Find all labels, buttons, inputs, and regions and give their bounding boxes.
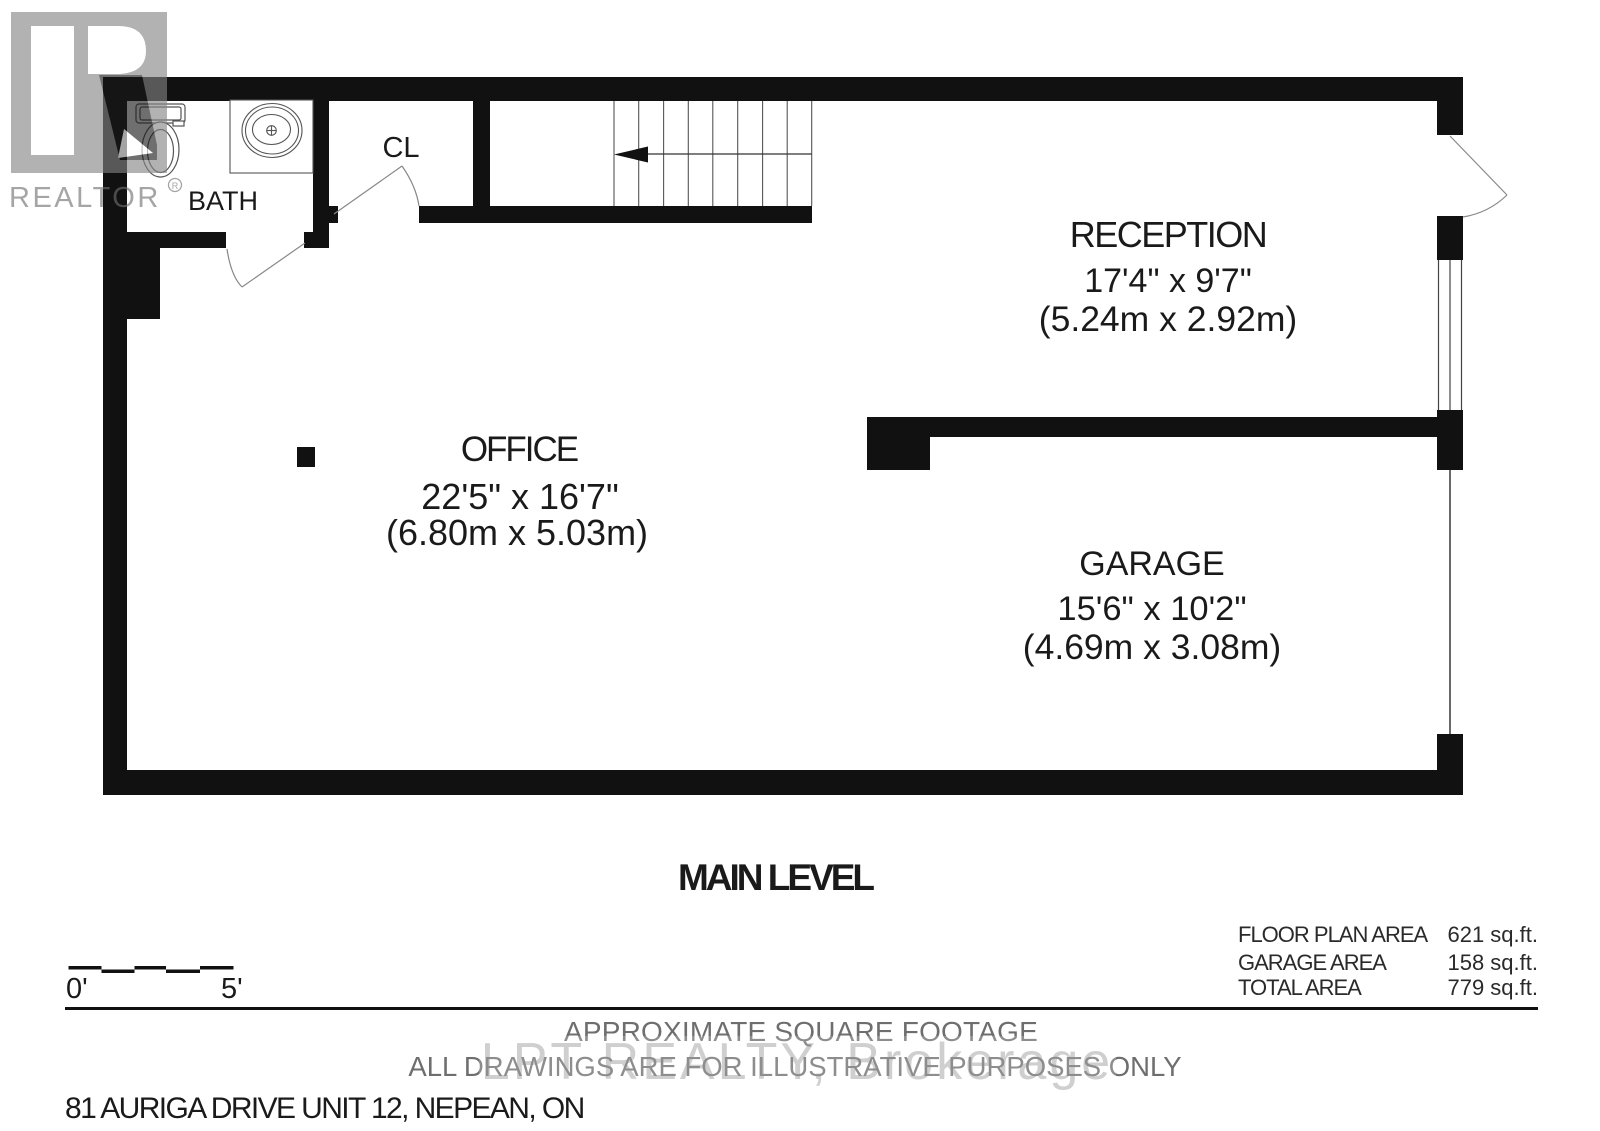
svg-text:OFFICE: OFFICE bbox=[461, 430, 578, 469]
svg-text:22'5" x 16'7": 22'5" x 16'7" bbox=[421, 476, 618, 517]
svg-text:BATH: BATH bbox=[188, 186, 258, 216]
svg-text:R: R bbox=[172, 181, 179, 191]
svg-text:15'6" x 10'2": 15'6" x 10'2" bbox=[1057, 590, 1246, 628]
svg-text:81 AURIGA DRIVE UNIT 12, NEPEA: 81 AURIGA DRIVE UNIT 12, NEPEAN, ON bbox=[65, 1092, 584, 1125]
svg-text:158 sq.ft.: 158 sq.ft. bbox=[1447, 950, 1538, 975]
svg-text:(4.69m x 3.08m): (4.69m x 3.08m) bbox=[1023, 627, 1281, 667]
svg-text:CL: CL bbox=[382, 132, 419, 164]
svg-text:621 sq.ft.: 621 sq.ft. bbox=[1447, 922, 1538, 947]
svg-text:(5.24m x 2.92m): (5.24m x 2.92m) bbox=[1039, 299, 1297, 339]
svg-text:0': 0' bbox=[66, 973, 88, 1005]
svg-text:GARAGE AREA: GARAGE AREA bbox=[1238, 950, 1387, 975]
svg-text:RECEPTION: RECEPTION bbox=[1070, 214, 1267, 255]
svg-text:5': 5' bbox=[221, 973, 243, 1005]
svg-text:REALTOR: REALTOR bbox=[9, 182, 161, 214]
svg-text:FLOOR PLAN AREA: FLOOR PLAN AREA bbox=[1238, 922, 1429, 947]
svg-text:17'4" x 9'7": 17'4" x 9'7" bbox=[1084, 262, 1252, 300]
svg-text:(6.80m x 5.03m): (6.80m x 5.03m) bbox=[386, 512, 648, 553]
svg-text:TOTAL AREA: TOTAL AREA bbox=[1238, 975, 1362, 1000]
svg-text:GARAGE: GARAGE bbox=[1079, 545, 1224, 583]
svg-text:MAIN LEVEL: MAIN LEVEL bbox=[678, 857, 874, 898]
svg-text:779 sq.ft.: 779 sq.ft. bbox=[1447, 975, 1538, 1000]
